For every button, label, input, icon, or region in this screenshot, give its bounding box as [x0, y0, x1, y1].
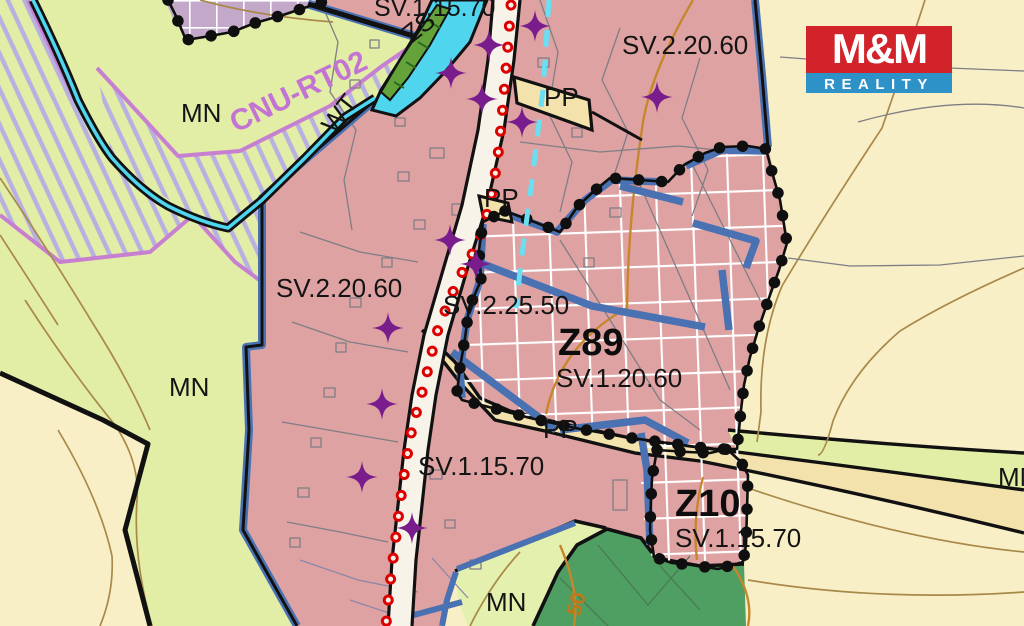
label-mn-northwest: MN — [181, 98, 221, 128]
logo-subtitle: REALITY — [824, 76, 934, 93]
label-pp-b: PP — [484, 183, 519, 213]
logo-title: M&M — [832, 25, 926, 72]
label-pp-a: PP — [544, 82, 579, 112]
label-pp-c: PP — [543, 414, 578, 444]
label-z89: Z89 — [558, 322, 623, 364]
label-z10: Z10 — [675, 483, 740, 525]
label-mn-east: MN — [998, 462, 1024, 492]
zoning-map-canvas[interactable]: SV.1.15.70 ZS SV.2.20.60 MN CNU-RT02 WT … — [0, 0, 1024, 626]
label-z89-code: SV.1.20.60 — [556, 363, 682, 393]
label-sv-west: SV.2.20.60 — [276, 273, 402, 303]
mm-reality-logo: M&M REALITY — [806, 25, 952, 93]
label-mn-west: MN — [169, 372, 209, 402]
label-z10-code: SV.1.15.70 — [675, 523, 801, 553]
label-sv-top: SV.1.15.70 — [374, 0, 495, 22]
label-mn-south: MN — [486, 587, 526, 617]
label-sv-northeast: SV.2.20.60 — [622, 30, 748, 60]
label-sv-center: SV.2.25.50 — [443, 290, 569, 320]
label-sv-south: SV.1.15.70 — [418, 451, 544, 481]
